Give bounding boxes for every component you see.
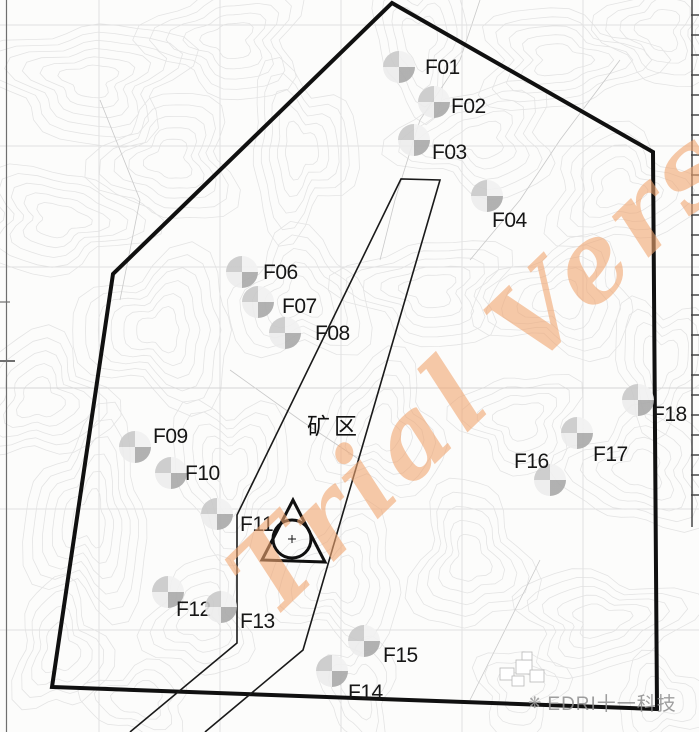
boundary-polygon [52,3,657,709]
turbine-label-F17: F17 [593,444,628,465]
turbine-label-F11: F11 [240,514,273,535]
turbine-symbol-F08 [269,317,301,349]
turbine-label-F08: F08 [315,323,350,344]
turbine-symbol-F03 [398,124,430,156]
swoosh-mark-icon: ❋ [528,693,542,713]
turbine-symbol-F01 [383,51,415,83]
turbine-label-F02: F02 [451,96,486,117]
turbine-label-F07: F07 [282,296,317,317]
region-label: 矿区 [307,415,361,438]
turbine-label-F03: F03 [432,142,467,163]
turbine-symbol-F11 [201,498,233,530]
turbine-symbol-F18 [622,384,654,416]
turbine-symbol-F07 [242,286,274,318]
turbine-symbol-F15 [348,625,380,657]
vendor-logo-text: EDRI十一科技 [547,689,676,716]
turbine-label-F15: F15 [383,645,418,666]
map-features [0,0,699,732]
turbine-symbol-F13 [205,591,237,623]
turbine-label-F18: F18 [652,404,687,425]
turbine-symbol-F04 [471,180,503,212]
turbine-label-F16: F16 [514,451,549,472]
map-canvas: F01F02F03F04F06F07F08F09F10F11F12F13F14F… [0,0,699,732]
turbine-symbol-F17 [561,417,593,449]
turbine-label-F01: F01 [425,57,460,78]
turbine-symbol-F06 [226,256,258,288]
turbine-symbol-F14 [316,655,348,687]
vendor-logo: ❋ EDRI十一科技 [528,689,677,716]
turbine-label-F14: F14 [348,682,383,703]
turbine-label-F09: F09 [153,426,188,447]
turbine-label-F13: F13 [240,611,275,632]
turbine-label-F10: F10 [185,463,220,484]
turbine-label-F06: F06 [263,262,298,283]
turbine-label-F04: F04 [492,210,527,231]
turbine-symbol-F09 [119,431,151,463]
turbine-symbol-F02 [418,86,450,118]
turbine-symbol-F10 [155,457,187,489]
